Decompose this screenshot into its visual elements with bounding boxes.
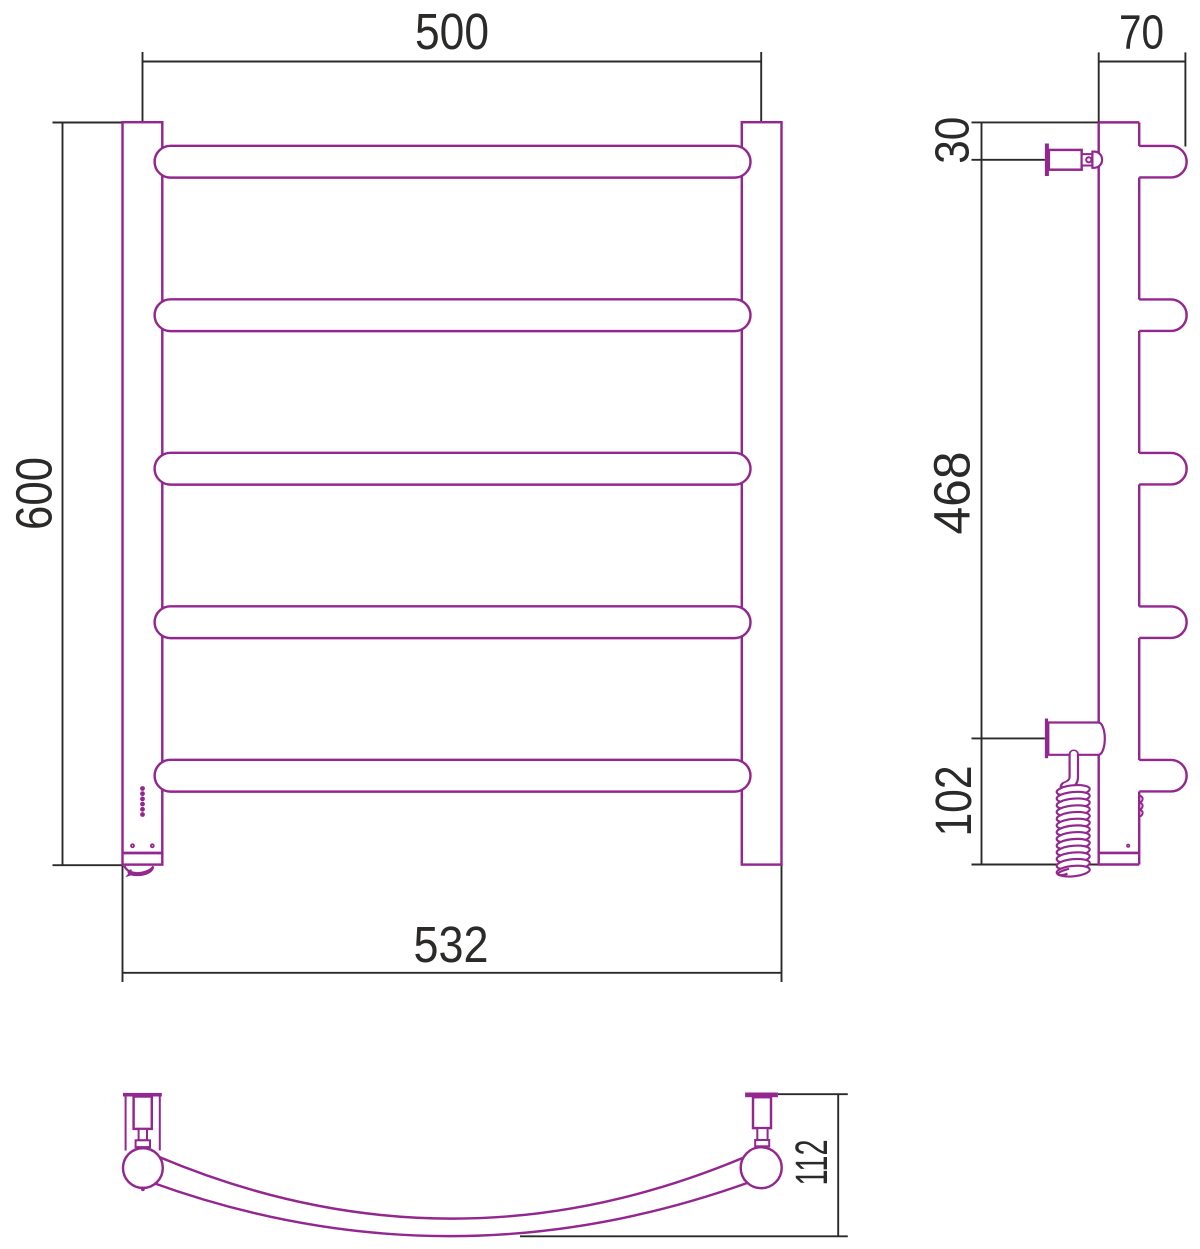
svg-text:600: 600 [6,457,63,530]
svg-text:532: 532 [414,916,489,973]
svg-text:500: 500 [415,3,489,60]
svg-text:30: 30 [927,117,980,164]
svg-text:112: 112 [786,1140,837,1186]
svg-text:102: 102 [925,766,982,837]
svg-text:70: 70 [1119,7,1164,60]
svg-text:468: 468 [924,452,981,535]
